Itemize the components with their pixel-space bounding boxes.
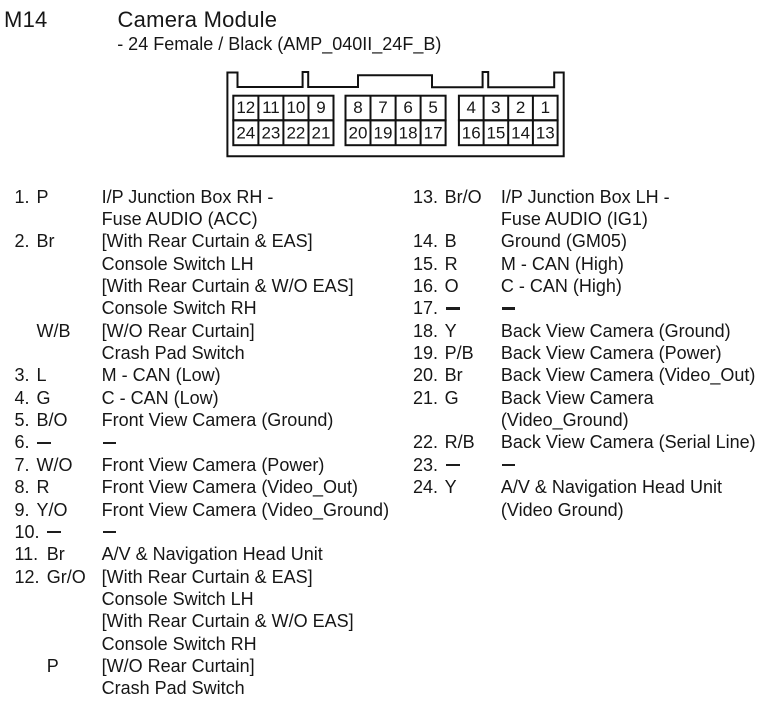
svg-text:18: 18 bbox=[399, 124, 418, 143]
svg-text:2: 2 bbox=[516, 98, 525, 117]
svg-text:10: 10 bbox=[286, 98, 305, 117]
svg-text:24: 24 bbox=[236, 124, 255, 143]
svg-text:23: 23 bbox=[261, 124, 280, 143]
svg-text:11: 11 bbox=[262, 98, 280, 117]
svg-text:15: 15 bbox=[486, 124, 505, 143]
svg-text:22: 22 bbox=[286, 124, 305, 143]
svg-text:1: 1 bbox=[541, 98, 550, 117]
svg-text:20: 20 bbox=[349, 124, 368, 143]
svg-text:21: 21 bbox=[312, 124, 331, 143]
svg-text:17: 17 bbox=[424, 124, 443, 143]
svg-text:3: 3 bbox=[491, 98, 500, 117]
svg-text:8: 8 bbox=[353, 98, 362, 117]
svg-text:4: 4 bbox=[466, 98, 475, 117]
svg-text:9: 9 bbox=[316, 98, 325, 117]
svg-text:7: 7 bbox=[378, 98, 387, 117]
svg-text:16: 16 bbox=[462, 124, 481, 143]
svg-text:12: 12 bbox=[236, 98, 255, 117]
svg-text:13: 13 bbox=[536, 124, 555, 143]
svg-text:14: 14 bbox=[511, 124, 530, 143]
svg-text:5: 5 bbox=[428, 98, 437, 117]
svg-text:19: 19 bbox=[374, 124, 393, 143]
svg-text:6: 6 bbox=[403, 98, 412, 117]
